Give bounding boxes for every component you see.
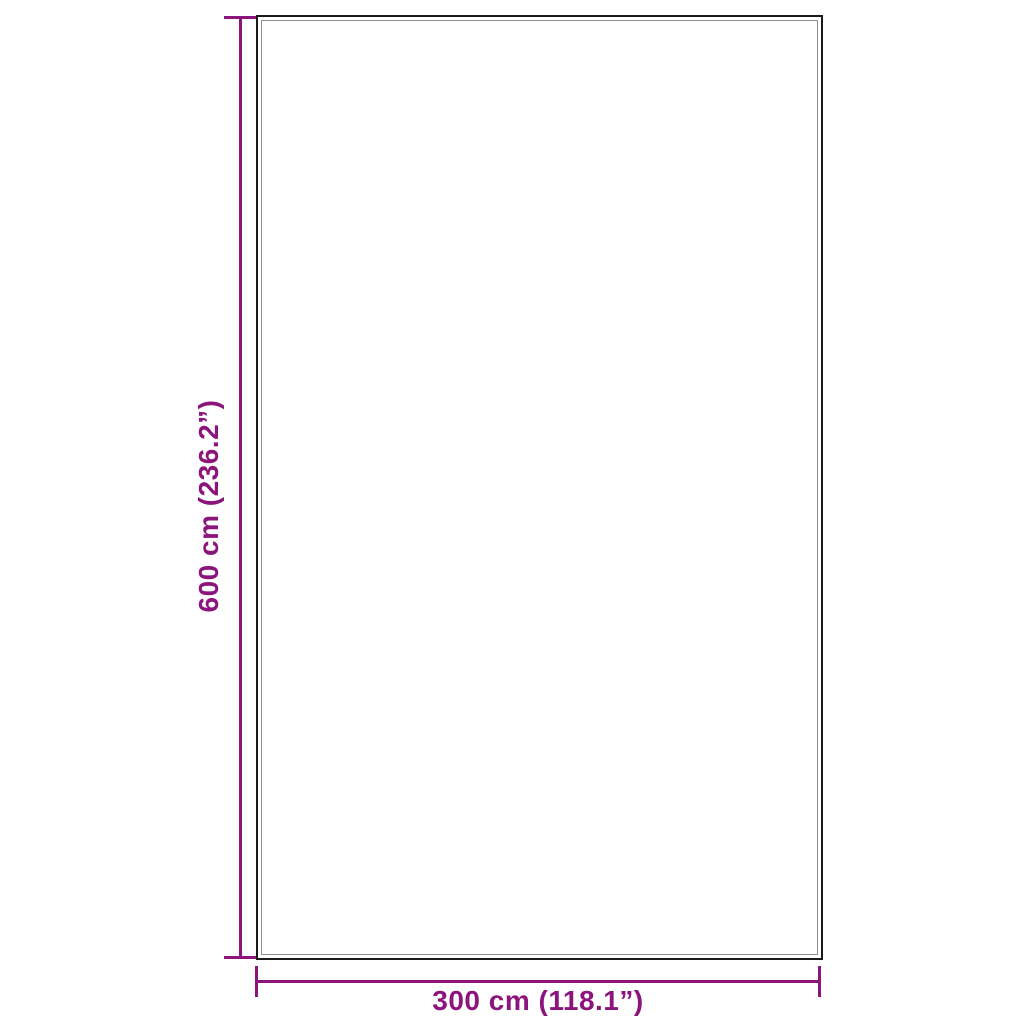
dimension-diagram: 600 cm (236.2”) 300 cm (118.1”) <box>0 0 1024 1024</box>
height-dimension-line <box>239 17 242 958</box>
height-dimension-cap-bottom <box>224 956 256 959</box>
width-dimension-cap-left <box>255 966 258 997</box>
width-dimension-cap-right <box>818 966 821 997</box>
width-dimension-label: 300 cm (118.1”) <box>432 987 643 1015</box>
product-outline-inner-line <box>261 20 818 955</box>
height-dimension-cap-top <box>224 16 256 19</box>
product-outline <box>256 15 823 960</box>
height-dimension-label: 600 cm (236.2”) <box>195 400 223 613</box>
width-dimension-line <box>256 980 820 983</box>
